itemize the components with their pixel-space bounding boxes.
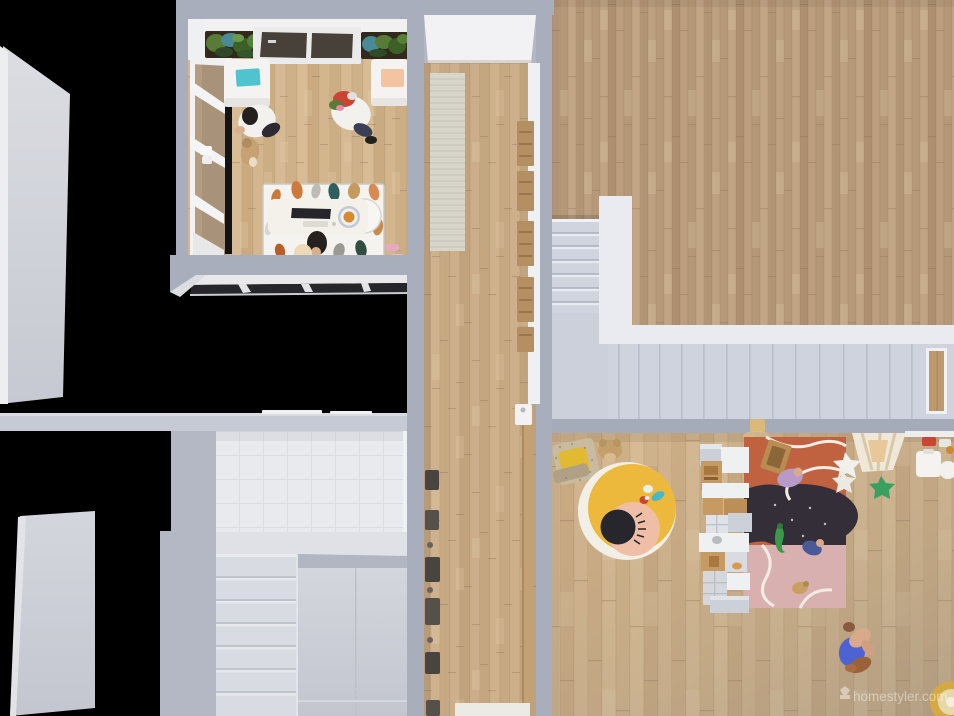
svg-text:homestyler.com: homestyler.com xyxy=(853,689,948,704)
